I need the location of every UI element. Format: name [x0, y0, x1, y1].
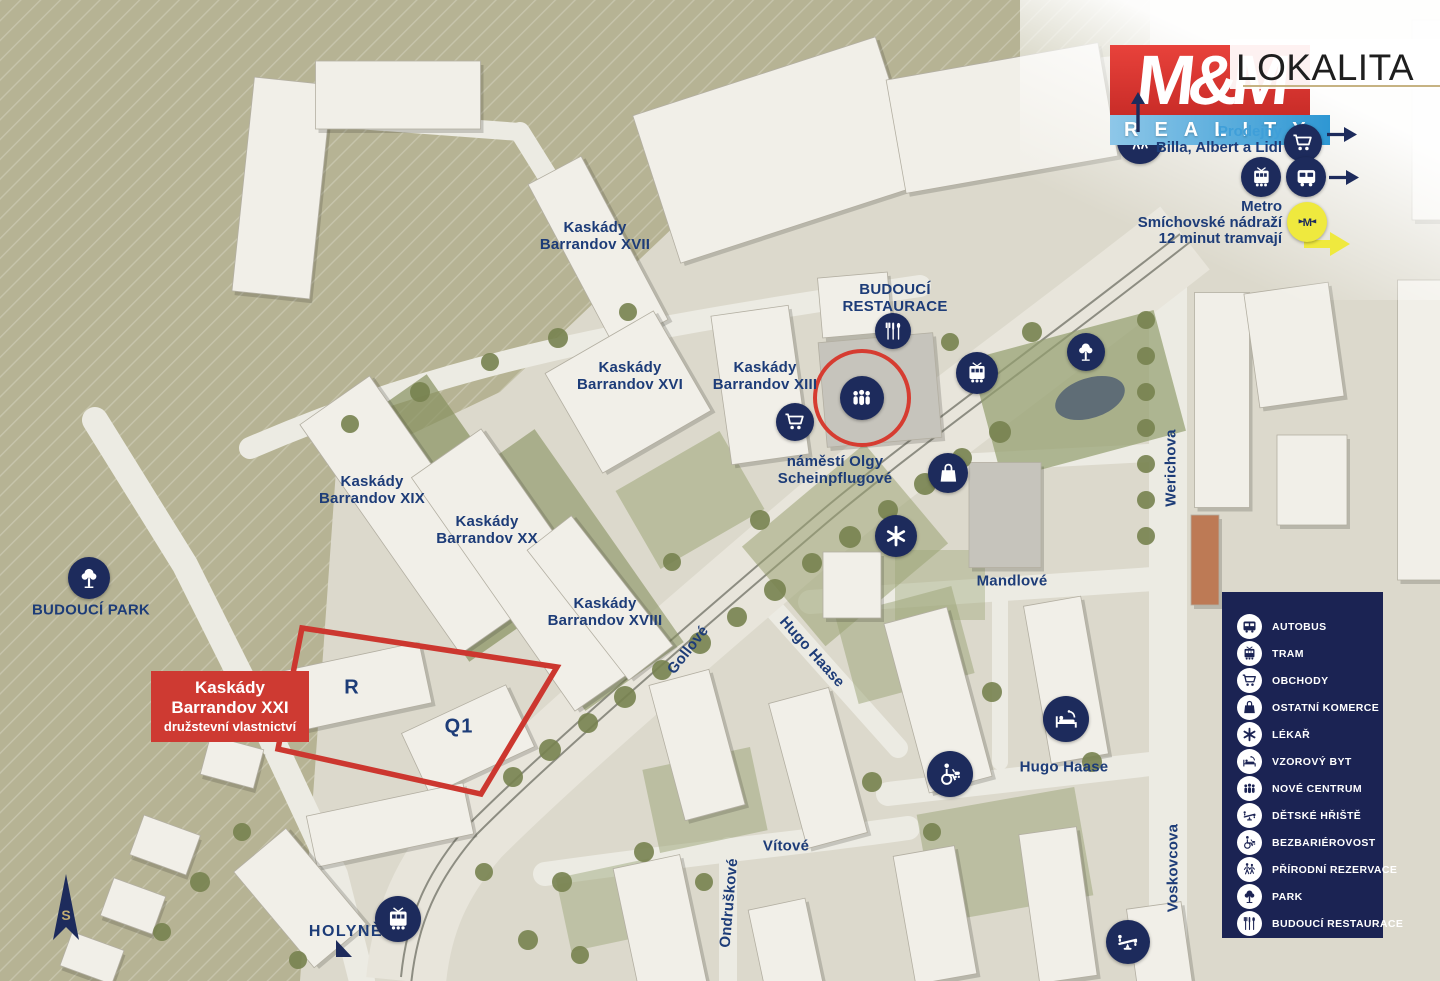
highlight-title: Kaskády Barrandov XXI — [157, 678, 303, 718]
label-kaskady-barrandov-xvi: Kaskády Barrandov XVI — [577, 359, 683, 393]
legend-item-park: PARK — [1237, 883, 1383, 910]
seesaw-icon — [1114, 928, 1141, 955]
tree — [289, 951, 307, 969]
legend-item-p-rodn-rezervace: PŘÍRODNÍ REZERVACE — [1237, 856, 1383, 883]
tram-icon — [1249, 165, 1274, 190]
legend-label: PŘÍRODNÍ REZERVACE — [1272, 864, 1397, 876]
tree — [764, 579, 786, 601]
lokalita-title: LOKALITA — [1236, 47, 1414, 89]
bag-icon — [936, 461, 961, 486]
bag-icon — [1241, 699, 1258, 716]
metro-line3: 12 minut tramvají — [1132, 231, 1282, 247]
legend-icon-bubble — [1237, 803, 1262, 828]
poi-accessibility — [927, 751, 973, 797]
wheelchair-icon — [1241, 834, 1258, 851]
street-voskovcova: Voskovcova — [1164, 824, 1181, 912]
legend-label: OBCHODY — [1272, 675, 1328, 687]
tree — [539, 739, 561, 761]
legend-items: AUTOBUSTRAMOBCHODYOSTATNÍ KOMERCELÉKAŘVZ… — [1237, 613, 1383, 937]
legend-label: TRAM — [1272, 648, 1304, 660]
arrow-right-icon — [1326, 126, 1358, 143]
tree — [1022, 322, 1042, 342]
tree-icon — [1074, 340, 1098, 364]
medical-icon — [1241, 726, 1258, 743]
legend-item-bezbari-rovost: BEZBARIÉROVOST — [1237, 829, 1383, 856]
legend-item-d-tsk-h-i-t-: DĚTSKÉ HŘIŠTĚ — [1237, 802, 1383, 829]
cart-icon — [783, 410, 807, 434]
building-footprint — [316, 61, 481, 129]
tree — [750, 510, 770, 530]
poi-tram-stop-holyne — [375, 896, 421, 942]
tree — [1137, 311, 1155, 329]
bus-icon — [1294, 165, 1319, 190]
tree — [1137, 419, 1155, 437]
walkers-icon — [1241, 861, 1258, 878]
tree — [663, 553, 681, 571]
header-bus-icon — [1286, 157, 1326, 197]
legend-item-budouc-restaurace: BUDOUCÍ RESTAURACE — [1237, 910, 1383, 937]
utensils-icon — [882, 320, 904, 342]
building-letter-r: R — [344, 677, 359, 700]
bed-icon — [1241, 753, 1258, 770]
tree — [578, 713, 598, 733]
building-footprint — [1244, 282, 1344, 408]
legend-label: NOVÉ CENTRUM — [1272, 783, 1362, 795]
tree — [190, 872, 210, 892]
legend-item-ostatn-komerce: OSTATNÍ KOMERCE — [1237, 694, 1383, 721]
metro-icon: M — [1295, 210, 1320, 235]
street-hugo-haase: Hugo Haase — [1020, 758, 1109, 775]
tree — [1137, 347, 1155, 365]
tram-icon — [964, 360, 990, 386]
legend-icon-bubble — [1237, 641, 1262, 666]
highlight-label-box: Kaskády Barrandov XXI družstevní vlastni… — [151, 671, 309, 742]
arrow-right-icon — [1328, 169, 1360, 186]
legend-label: LÉKAŘ — [1272, 729, 1310, 741]
tree — [481, 353, 499, 371]
legend-icon-bubble — [1237, 749, 1262, 774]
tree — [341, 415, 359, 433]
label-kaskady-barrandov-xix: Kaskády Barrandov XIX — [319, 473, 425, 507]
tree — [862, 772, 882, 792]
label-namesti-olgy-scheinpflugove: náměstí Olgy Scheinpflugové — [778, 453, 892, 487]
legend-label: BUDOUCÍ RESTAURACE — [1272, 918, 1403, 930]
street-vitove: Vítové — [763, 837, 809, 854]
legend-label: DĚTSKÉ HŘIŠTĚ — [1272, 810, 1361, 822]
medical-icon — [883, 523, 909, 549]
tree — [410, 382, 430, 402]
poi-park — [1067, 333, 1105, 371]
highlight-subtitle: družstevní vlastnictví — [157, 719, 303, 734]
legend-icon-bubble — [1237, 722, 1262, 747]
label-kaskady-barrandov-xvii: Kaskády Barrandov XVII — [540, 219, 650, 253]
tree — [802, 553, 822, 573]
poi-nove-centrum — [840, 376, 884, 420]
tree — [552, 872, 572, 892]
street-mandlove: Mandlové — [977, 572, 1048, 589]
legend-label: PARK — [1272, 891, 1303, 903]
tree — [1137, 455, 1155, 473]
svg-text:M: M — [1302, 217, 1311, 229]
tree — [634, 842, 654, 862]
tree — [614, 686, 636, 708]
legend-label: VZOROVÝ BYT — [1272, 756, 1352, 768]
tree-icon — [76, 565, 102, 591]
people-icon — [848, 384, 875, 411]
tree-icon — [1241, 888, 1258, 905]
legend-item-l-ka-: LÉKAŘ — [1237, 721, 1383, 748]
building-footprint — [1195, 293, 1250, 508]
tree — [695, 873, 713, 891]
building-footprint — [1191, 515, 1219, 605]
legend-icon-bubble — [1237, 695, 1262, 720]
legend-icon-bubble — [1237, 668, 1262, 693]
poi-show-flat — [1043, 696, 1089, 742]
legend-label: AUTOBUS — [1272, 621, 1327, 633]
tree — [518, 930, 538, 950]
map-legend: AUTOBUSTRAMOBCHODYOSTATNÍ KOMERCELÉKAŘVZ… — [1222, 592, 1383, 938]
label-budouci-park: BUDOUCÍ PARK — [32, 601, 150, 618]
people-icon — [1241, 780, 1258, 797]
legend-icon-bubble — [1237, 911, 1262, 936]
utensils-icon — [1241, 915, 1258, 932]
poi-tram-stop — [956, 352, 998, 394]
legend-label: BEZBARIÉROVOST — [1272, 837, 1376, 849]
label-kaskady-barrandov-xiii: Kaskády Barrandov XIII — [713, 359, 818, 393]
shops-line2: Billa, Albert a Lidl — [1112, 140, 1282, 156]
locality-map: Kaskády Barrandov XXI družstevní vlastni… — [0, 0, 1440, 981]
label-holyne: HOLYNĚ — [309, 923, 383, 941]
label-budouci-restaurace: BUDOUCÍ RESTAURACE — [842, 281, 947, 315]
tree — [619, 303, 637, 321]
tree — [475, 863, 493, 881]
compass-label: S — [61, 907, 70, 923]
bed-icon — [1052, 705, 1081, 734]
arrow-up-icon — [1130, 90, 1146, 134]
bus-icon — [1241, 618, 1258, 635]
wheelchair-icon — [936, 760, 965, 789]
cart-icon — [1291, 131, 1315, 155]
poi-playground — [1106, 920, 1150, 964]
cart-icon — [1241, 672, 1258, 689]
legend-icon-bubble — [1237, 614, 1262, 639]
tree — [548, 328, 568, 348]
shops-line1: Prodejny — [1132, 124, 1282, 140]
legend-item-nov-centrum: NOVÉ CENTRUM — [1237, 775, 1383, 802]
header-metro-icon: M — [1287, 202, 1327, 242]
poi-future-park — [68, 557, 110, 599]
tree — [1137, 527, 1155, 545]
seesaw-icon — [1241, 807, 1258, 824]
tree — [941, 333, 959, 351]
tree — [982, 682, 1002, 702]
tram-icon — [1241, 645, 1258, 662]
building-footprint — [1277, 435, 1347, 525]
building-footprint — [969, 463, 1041, 568]
building-footprint — [823, 552, 881, 618]
legend-item-obchody: OBCHODY — [1237, 667, 1383, 694]
poi-doctor — [875, 515, 917, 557]
tree — [1137, 383, 1155, 401]
legend-item-vzorov-byt: VZOROVÝ BYT — [1237, 748, 1383, 775]
legend-icon-bubble — [1237, 857, 1262, 882]
metro-line2: Smíchovské nádraží — [1132, 215, 1282, 231]
legend-label: OSTATNÍ KOMERCE — [1272, 702, 1379, 714]
legend-item-tram: TRAM — [1237, 640, 1383, 667]
tree — [1137, 491, 1155, 509]
tree — [989, 421, 1011, 443]
tree — [727, 607, 747, 627]
header-tram-icon — [1241, 157, 1281, 197]
street-werichova: Werichova — [1162, 429, 1179, 506]
tree — [923, 823, 941, 841]
building-letter-q1: Q1 — [445, 716, 474, 739]
metro-line1: Metro — [1132, 199, 1282, 215]
tree — [233, 823, 251, 841]
legend-icon-bubble — [1237, 830, 1262, 855]
poi-restaurant — [875, 313, 911, 349]
tree — [503, 767, 523, 787]
building-footprint — [1398, 280, 1440, 580]
tram-icon — [384, 905, 413, 934]
poi-shop — [776, 403, 814, 441]
label-kaskady-barrandov-xx: Kaskády Barrandov XX — [436, 513, 538, 547]
poi-commerce — [928, 453, 968, 493]
legend-item-autobus: AUTOBUS — [1237, 613, 1383, 640]
tree — [839, 526, 861, 548]
legend-icon-bubble — [1237, 884, 1262, 909]
legend-icon-bubble — [1237, 776, 1262, 801]
label-kaskady-barrandov-xviii: Kaskády Barrandov XVIII — [548, 595, 663, 629]
tree — [153, 923, 171, 941]
tree — [571, 946, 589, 964]
compass-north-icon: S — [40, 870, 92, 950]
